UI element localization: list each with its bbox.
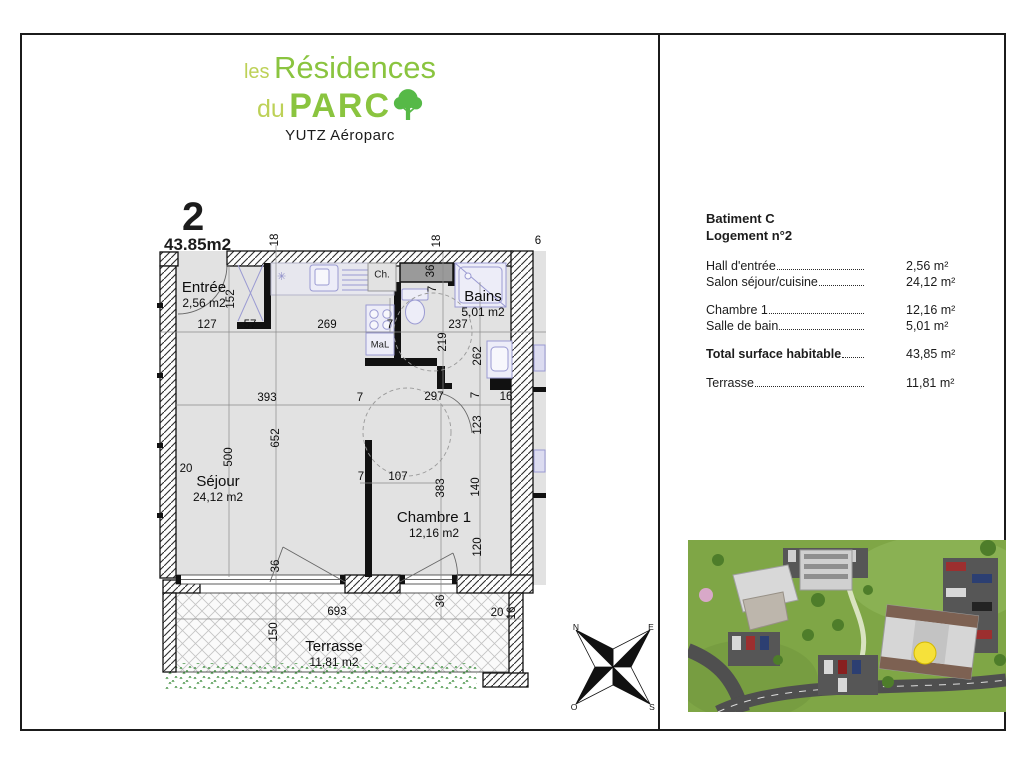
area-row-label: Total surface habitable xyxy=(706,347,841,363)
dimension-label: 7 xyxy=(357,392,363,404)
dimension-label: 297 xyxy=(424,391,443,403)
dimension-label: 219 xyxy=(437,332,449,351)
room-area: 24,12 m2 xyxy=(193,490,243,504)
dimension-label: 269 xyxy=(317,319,336,331)
dotted-leader xyxy=(819,285,864,286)
water-heater-label: Ch. xyxy=(374,270,390,281)
panel-divider xyxy=(658,33,660,731)
area-row-value: 24,12 m² xyxy=(906,275,968,291)
logo-line1: les Résidences xyxy=(175,52,505,85)
floor-plan: ✳ 2 43.85m2 Entrée2,56 m xyxy=(150,195,570,720)
dotted-leader xyxy=(779,329,864,330)
area-row: Hall d'entrée2,56 m² xyxy=(706,259,968,275)
dimension-label: 20 xyxy=(180,463,193,475)
dimension-label: 123 xyxy=(472,415,484,434)
room-area: 12,16 m2 xyxy=(397,526,471,540)
unit-number: 2 xyxy=(182,195,204,240)
logo: les Résidences du PARC YUTZ Aéroparc xyxy=(175,52,505,144)
dimension-label: 693 xyxy=(327,606,346,618)
aerial-view xyxy=(688,540,1006,712)
washing-machine-label: MaL xyxy=(371,340,389,351)
logo-line2: du PARC xyxy=(175,87,505,125)
dimension-label: 152 xyxy=(225,289,237,308)
area-row-value: 5,01 m² xyxy=(906,319,968,335)
area-row-value: 2,56 m² xyxy=(906,259,968,275)
area-row: Salon séjour/cuisine24,12 m² xyxy=(706,275,968,291)
dimension-label: 393 xyxy=(257,392,276,404)
room-area: 2,56 m2 xyxy=(182,296,226,310)
room-name: Entrée xyxy=(182,279,226,296)
area-row: Total surface habitable43,85 m² xyxy=(706,347,968,363)
logo-residences: Résidences xyxy=(274,50,436,85)
area-row-value: 11,81 m² xyxy=(906,376,968,392)
compass-icon: N E O S xyxy=(568,622,658,712)
area-row-label: Salle de bain xyxy=(706,319,778,335)
details-panel: Batiment C Logement n°2 Hall d'entrée2,5… xyxy=(706,210,968,391)
area-row-label: Hall d'entrée xyxy=(706,259,776,275)
dimension-label: 7 xyxy=(387,319,393,331)
site-plan-image xyxy=(688,540,1006,712)
dimension-label: 107 xyxy=(388,471,407,483)
room-name: Séjour xyxy=(193,473,243,490)
room-area: 11,81 m2 xyxy=(305,655,363,669)
dimension-label: 127 xyxy=(197,319,216,331)
area-row-label: Chambre 1 xyxy=(706,303,768,319)
dimension-label: 500 xyxy=(223,447,235,466)
area-row: Salle de bain5,01 m² xyxy=(706,319,968,335)
dotted-leader xyxy=(777,269,864,270)
area-row: Terrasse11,81 m² xyxy=(706,376,968,392)
dimension-label: 16 xyxy=(500,391,513,403)
unit-total-area: 43.85m2 xyxy=(164,235,231,255)
dimension-label: 7 xyxy=(470,392,482,398)
dimension-label: 652 xyxy=(270,428,282,447)
dimension-label: 20 xyxy=(491,607,504,619)
dimension-label: 120 xyxy=(472,537,484,556)
dotted-leader xyxy=(842,357,864,358)
svg-text:✳: ✳ xyxy=(277,271,286,283)
dimension-label: 7 xyxy=(358,471,364,483)
area-row: Chambre 112,16 m² xyxy=(706,303,968,319)
dimension-label: 150 xyxy=(268,622,280,641)
dimension-label: 36 xyxy=(270,560,282,573)
room-label: Terrasse11,81 m2 xyxy=(305,638,363,669)
area-row-label: Salon séjour/cuisine xyxy=(706,275,818,291)
dimension-label: 36 xyxy=(435,595,447,608)
dotted-leader xyxy=(755,386,864,387)
dimension-label: 262 xyxy=(472,346,484,365)
logo-du: du xyxy=(257,95,285,123)
room-name: Chambre 1 xyxy=(397,509,471,526)
building-title: Batiment C xyxy=(706,210,968,227)
compass-west: O xyxy=(571,702,578,712)
dimension-label: 36 xyxy=(425,265,437,278)
room-label: Bains5,01 m2 xyxy=(461,288,504,319)
room-label: Entrée2,56 m2 xyxy=(182,279,226,310)
dimension-label: 18 xyxy=(269,234,281,247)
room-label: Séjour24,12 m2 xyxy=(193,473,243,504)
room-area: 5,01 m2 xyxy=(461,305,504,319)
dimension-label: 7 xyxy=(427,286,439,292)
compass-rose: N E O S xyxy=(568,622,658,712)
room-name: Terrasse xyxy=(305,638,363,655)
dimension-label: 383 xyxy=(435,478,447,497)
dimension-label: 16 xyxy=(506,607,518,620)
logo-parc: PARC xyxy=(289,87,391,125)
compass-east: E xyxy=(648,622,654,632)
dimension-label: 237 xyxy=(448,319,467,331)
dimension-label: 140 xyxy=(470,477,482,496)
compass-south: S xyxy=(649,702,655,712)
logo-subtitle: YUTZ Aéroparc xyxy=(175,128,505,144)
dotted-leader xyxy=(769,313,864,314)
area-row-label: Terrasse xyxy=(706,376,754,392)
unit-title: Logement n°2 xyxy=(706,227,968,244)
room-label: Chambre 112,16 m2 xyxy=(397,509,471,540)
area-table: Hall d'entrée2,56 m²Salon séjour/cuisine… xyxy=(706,259,968,391)
dimension-label: 18 xyxy=(431,235,443,248)
dimension-label: 6 xyxy=(535,235,541,247)
logo-les: les xyxy=(244,61,270,83)
area-row-value: 43,85 m² xyxy=(906,347,968,363)
tree-icon xyxy=(393,87,423,123)
room-name: Bains xyxy=(461,288,504,305)
dimension-label: 57 xyxy=(244,319,257,331)
compass-north: N xyxy=(573,622,579,632)
area-row-value: 12,16 m² xyxy=(906,303,968,319)
